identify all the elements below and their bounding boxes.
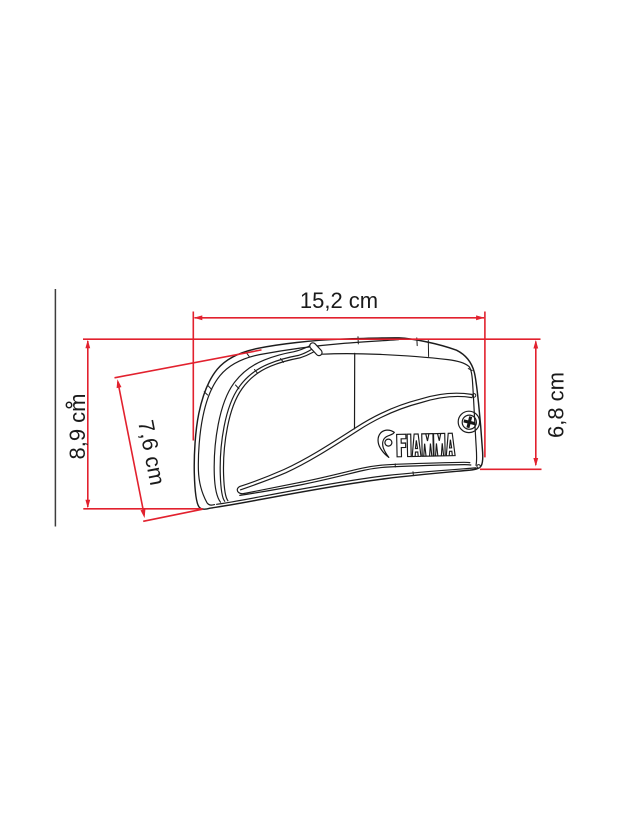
svg-text:6,8 cm: 6,8 cm <box>543 372 568 438</box>
svg-text:15,2 cm: 15,2 cm <box>300 288 378 313</box>
svg-text:7,6 cm: 7,6 cm <box>133 418 170 488</box>
